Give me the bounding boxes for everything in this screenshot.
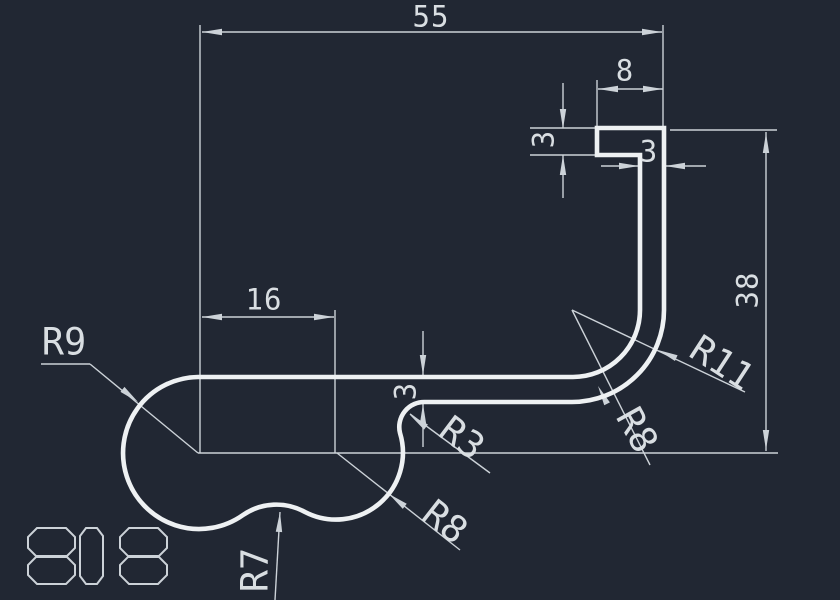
arrow-55-left: [202, 29, 222, 35]
stamp-digit-8-second: [120, 528, 167, 584]
arrow-8-right: [643, 86, 663, 92]
dim-text-stem-thickness: 3: [640, 138, 658, 167]
stamp-digit-8-first: [28, 528, 75, 584]
arrow-3-flange-bottom: [560, 155, 566, 175]
dim-text-bulb-center-offset: 16: [246, 286, 283, 315]
arrowheads: [120, 29, 769, 532]
arrow-r9: [120, 387, 140, 405]
arrow-3-flange-top: [560, 109, 566, 129]
arrow-55-right: [642, 29, 662, 35]
arrow-3-step-top: [420, 355, 426, 375]
radius-label-bulb: R9: [42, 324, 87, 361]
dim-text-hook-flange-width: 8: [616, 57, 634, 86]
arrow-16-right: [314, 314, 334, 320]
dim-text-overall-width: 55: [413, 3, 450, 32]
arrow-3-stem-right: [665, 163, 685, 169]
stamp-digit-0: [80, 528, 103, 584]
arrow-16-left: [202, 314, 222, 320]
stamp-drawing-number: [28, 528, 167, 584]
dim-text-wall-thickness: 3: [392, 382, 421, 400]
cad-drawing-canvas[interactable]: 55 8 3 3 38 16 3 R9 R3 R8 R7 R8 R11: [0, 0, 840, 600]
arrow-r11: [657, 347, 678, 361]
dim-text-overall-height: 38: [734, 272, 763, 309]
arrow-3-stem-left: [619, 163, 639, 169]
drawing-linework: [0, 0, 840, 600]
arrow-38-top: [763, 133, 769, 153]
profile-outline: [123, 128, 664, 529]
arrow-38-bottom: [763, 430, 769, 450]
radius-label-waist: R7: [237, 548, 274, 593]
arrow-r7: [276, 512, 283, 532]
dim-text-flange-thickness: 3: [530, 130, 559, 148]
